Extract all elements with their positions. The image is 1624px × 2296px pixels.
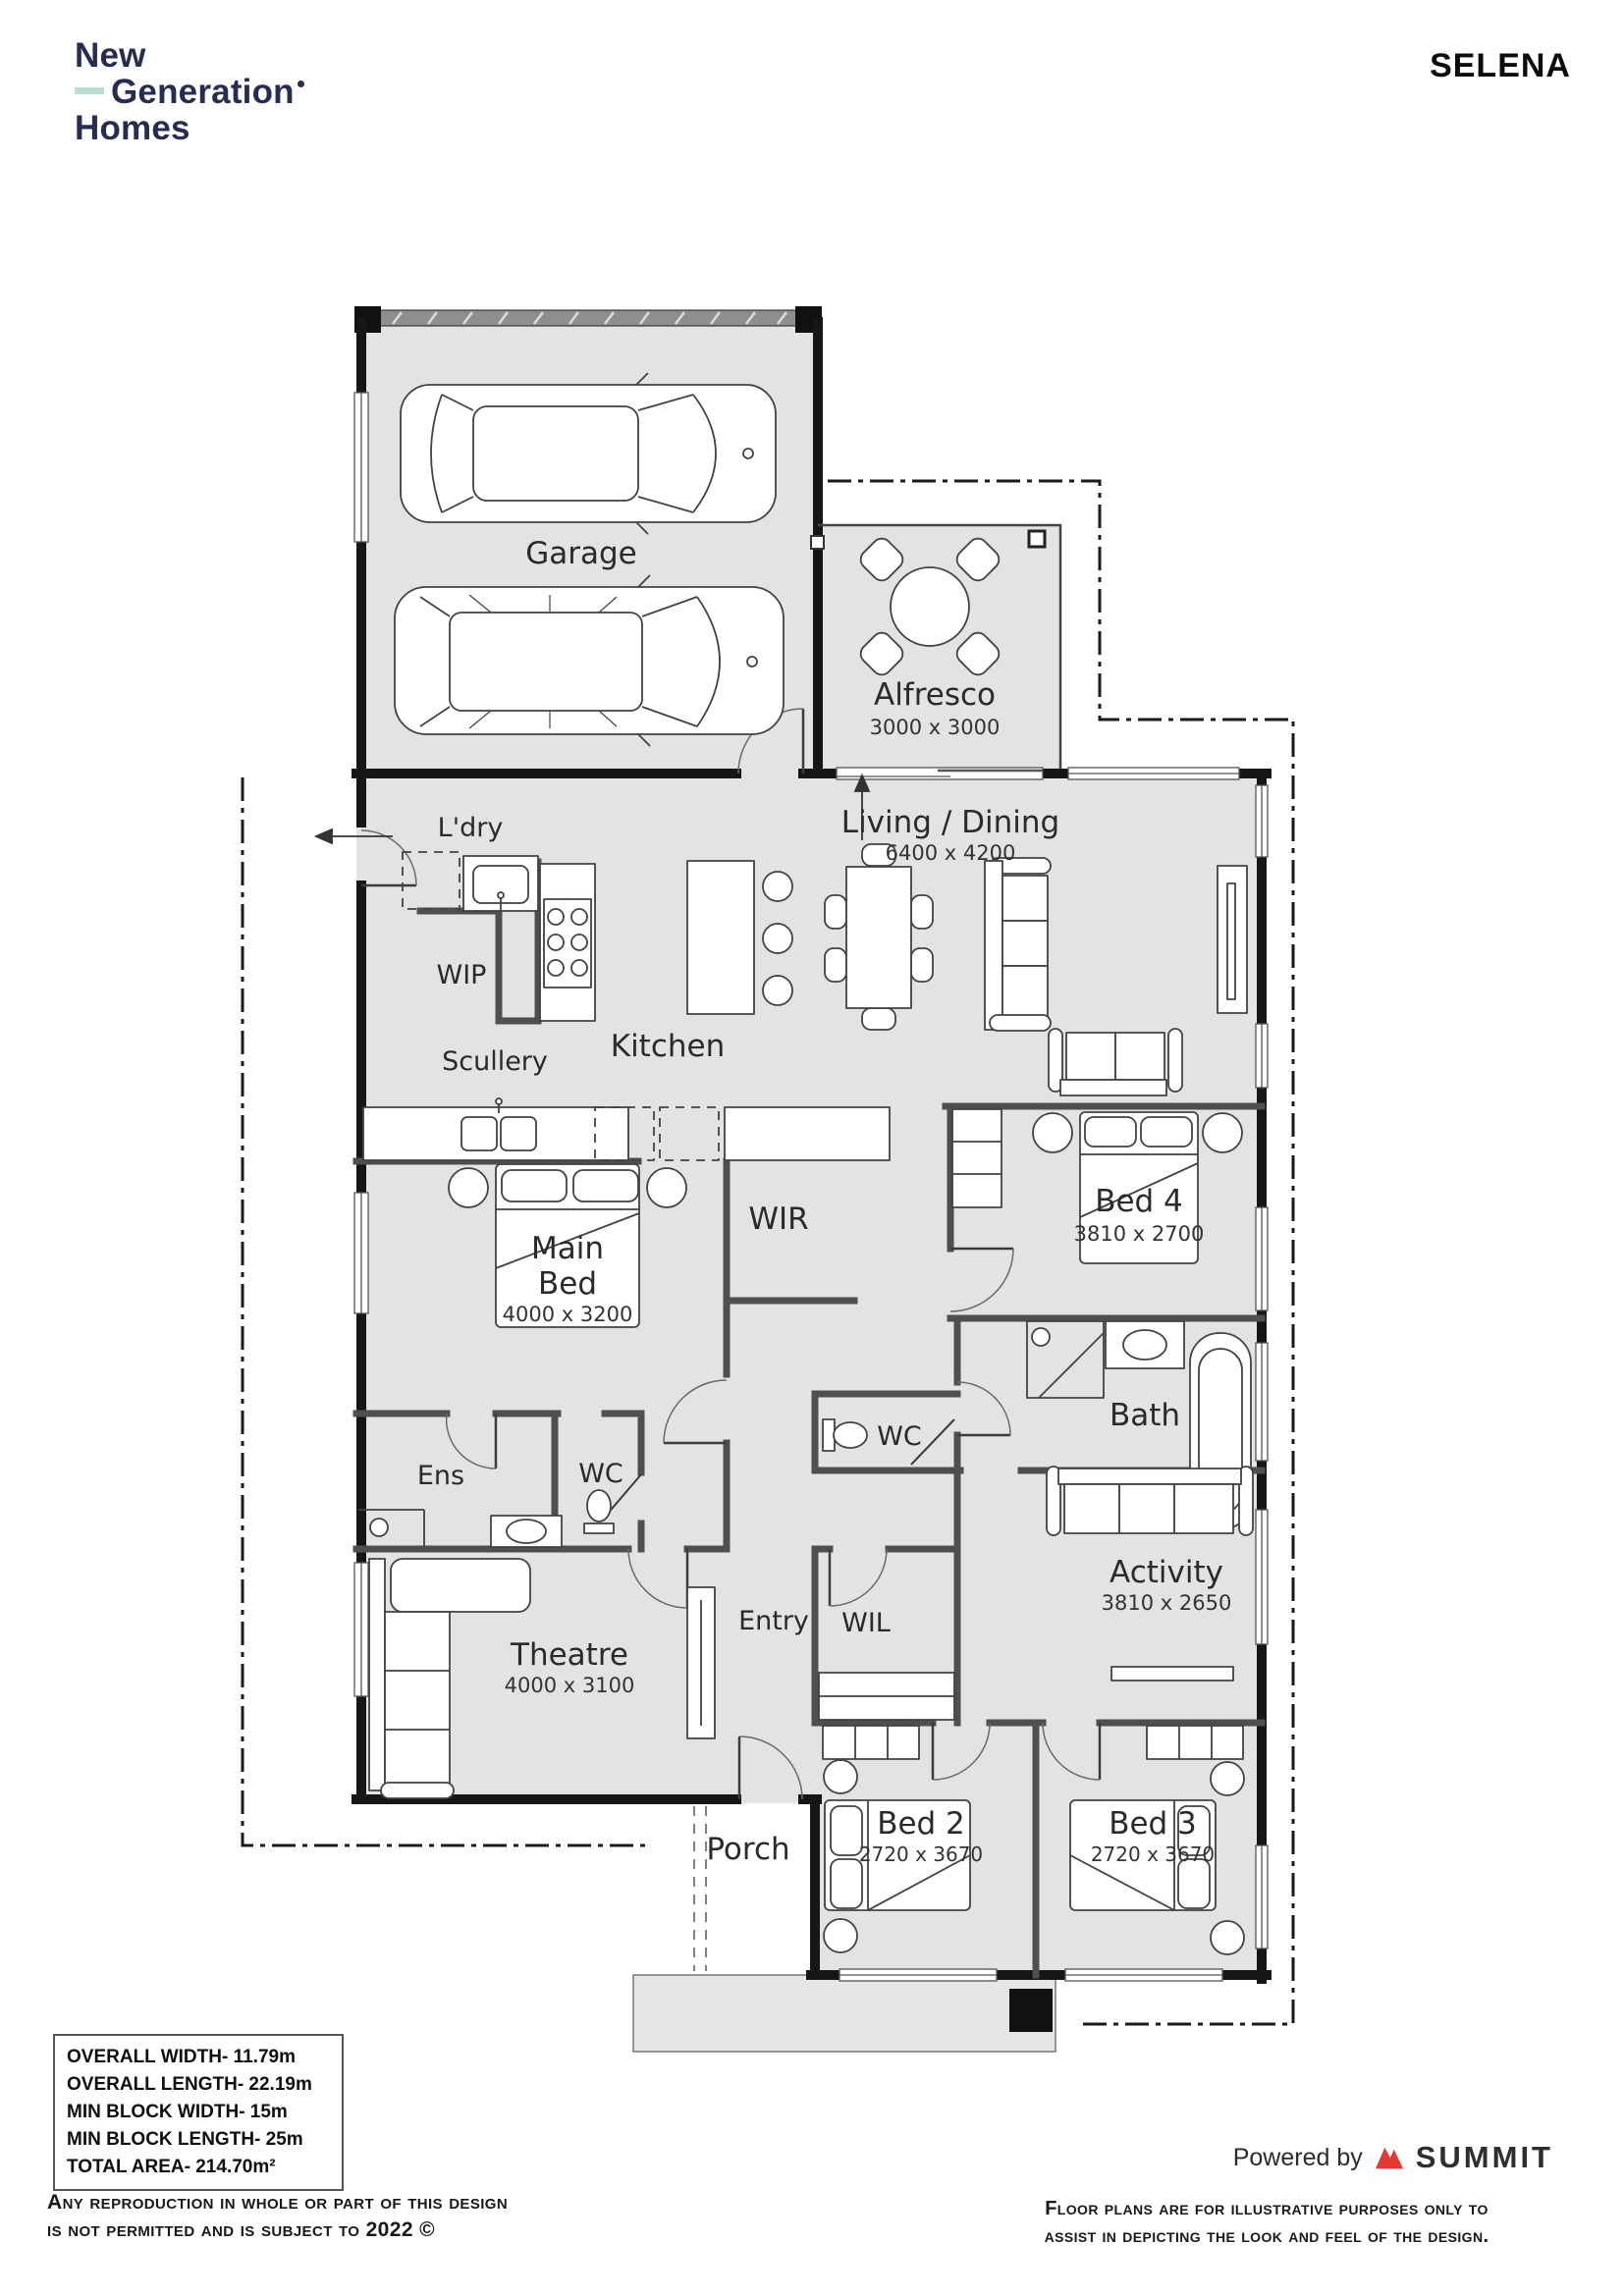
disclaimer-text: Floor plans are for illustrative purpose… (913, 2195, 1620, 2250)
spec-overall-width: OVERALL WIDTH- 11.79m (67, 2044, 330, 2071)
scullery-bench-icon (363, 1098, 890, 1160)
room-label-wc-main: WC (578, 1459, 623, 1489)
room-dims-bed2: 2720 x 3670 (859, 1842, 983, 1866)
room-label-entry: Entry (738, 1606, 809, 1636)
room-label-main-bed-2: Bed (538, 1266, 597, 1302)
tv-cabinet-icon (687, 1587, 715, 1738)
copyright-text: Any reproduction in whole or part of thi… (47, 2189, 508, 2245)
tv-unit-icon (1218, 866, 1247, 1013)
logo-dot-icon (298, 80, 304, 87)
powered-by: Powered by SUMMIT (1233, 2140, 1553, 2175)
room-dims-alfresco: 3000 x 3000 (870, 716, 1001, 739)
brand-logo: New Generation Homes (75, 37, 304, 146)
copyright-line-1: Any reproduction in whole or part of thi… (47, 2189, 508, 2216)
room-label-scullery: Scullery (442, 1046, 548, 1077)
kitchen-island-icon (687, 861, 792, 1014)
room-label-bath: Bath (1110, 1398, 1180, 1433)
room-label-ldry: L'dry (438, 813, 504, 843)
room-label-living-dining: Living / Dining (841, 805, 1059, 840)
room-label-bed4: Bed 4 (1095, 1184, 1183, 1219)
brand-line-1: New (75, 37, 304, 74)
room-label-theatre: Theatre (510, 1637, 628, 1673)
spec-min-block-width: MIN BLOCK WIDTH- 15m (67, 2099, 330, 2126)
room-label-alfresco: Alfresco (874, 677, 996, 713)
room-label-garage: Garage (525, 536, 637, 571)
toilet-icon (823, 1419, 867, 1451)
sliding-door (837, 768, 1043, 779)
porch-slab (633, 1975, 1056, 2052)
room-label-wip: WIP (437, 960, 487, 990)
powered-by-label: Powered by (1233, 2144, 1363, 2172)
spec-min-block-length: MIN BLOCK LENGTH- 25m (67, 2126, 330, 2154)
room-label-bed2: Bed 2 (877, 1806, 965, 1842)
copyright-line-2: is not permitted and is subject to 2022 … (47, 2216, 508, 2244)
room-label-wir: WIR (748, 1201, 808, 1237)
specs-box: OVERALL WIDTH- 11.79m OVERALL LENGTH- 22… (53, 2034, 344, 2191)
room-dims-theatre: 4000 x 3100 (505, 1674, 635, 1697)
spec-total-area: TOTAL AREA- 214.70m² (67, 2154, 330, 2181)
room-dims-living-dining: 6400 x 4200 (886, 841, 1016, 865)
room-label-ens: Ens (417, 1461, 464, 1491)
room-label-main-bed-1: Main (531, 1231, 604, 1266)
disclaimer-line-1: Floor plans are for illustrative purpose… (913, 2195, 1620, 2222)
car-icon (401, 373, 776, 534)
linen-shelf-icon (819, 1673, 954, 1720)
room-label-activity: Activity (1110, 1555, 1223, 1590)
brand-line-3: Homes (75, 110, 304, 146)
disclaimer-line-2: assist in depicting the look and feel of… (913, 2222, 1620, 2250)
spec-overall-length: OVERALL LENGTH- 22.19m (67, 2071, 330, 2099)
room-label-wil: WIL (841, 1608, 891, 1638)
room-dims-activity: 3810 x 2650 (1102, 1591, 1232, 1615)
brand-line-2: Generation (75, 74, 304, 110)
summit-logo-icon (1373, 2144, 1406, 2171)
room-dims-main-bed: 4000 x 3200 (503, 1303, 633, 1326)
toilet-icon (584, 1490, 614, 1533)
floor-plan: Garage Alfresco 3000 x 3000 L'dry Living… (0, 0, 1624, 2296)
room-label-bed3: Bed 3 (1109, 1806, 1197, 1842)
cooktop-icon (540, 864, 595, 1021)
room-label-wc-bath: WC (877, 1421, 922, 1452)
summit-wordmark: SUMMIT (1416, 2140, 1553, 2175)
page-title: SELENA (1430, 47, 1571, 85)
room-dims-bed3: 2720 x 3670 (1091, 1842, 1215, 1866)
room-label-porch: Porch (706, 1832, 789, 1867)
logo-dash-icon (75, 87, 104, 94)
room-dims-bed4: 3810 x 2700 (1074, 1222, 1205, 1246)
room-label-kitchen: Kitchen (611, 1029, 726, 1064)
car-icon (395, 575, 784, 746)
